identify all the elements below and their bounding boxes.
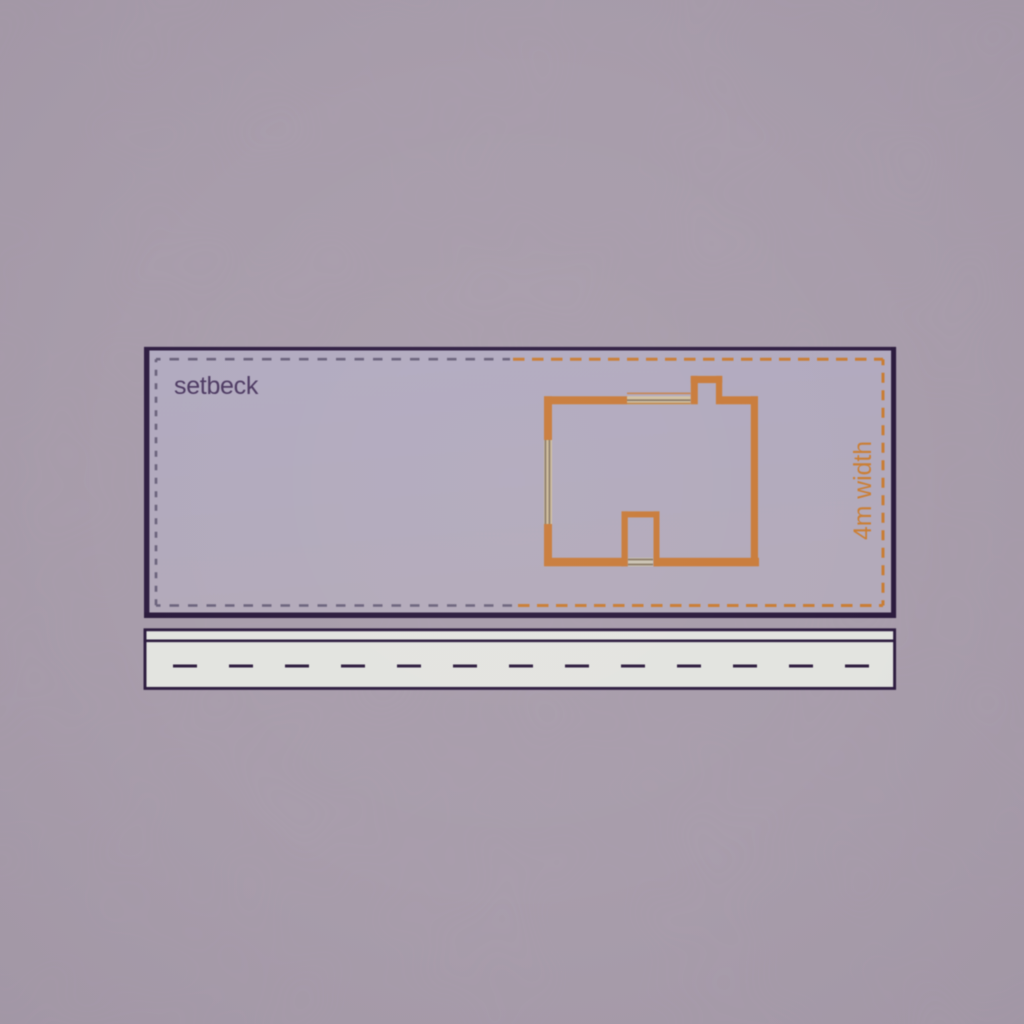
- svg-text:4m width: 4m width: [849, 441, 877, 540]
- svg-text:setbeck: setbeck: [174, 372, 259, 400]
